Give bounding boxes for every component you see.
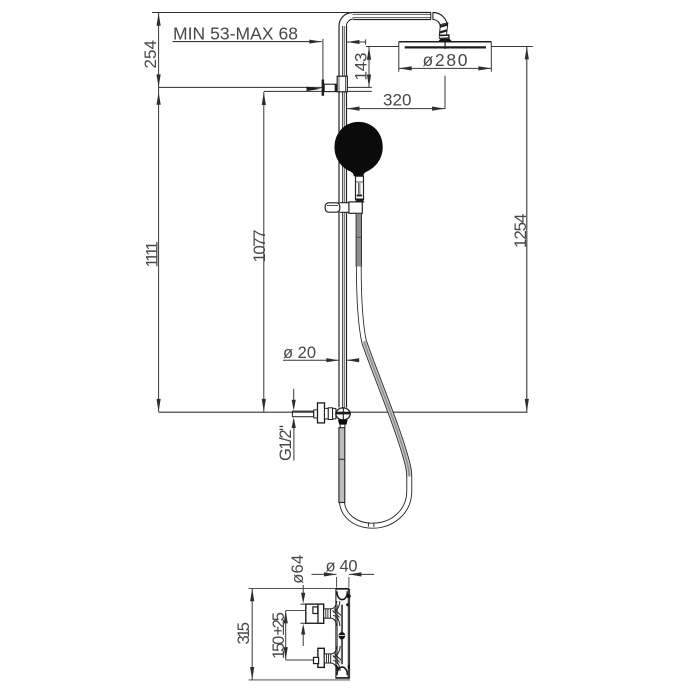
svg-text:G1/2": G1/2" <box>277 425 295 461</box>
svg-text:143: 143 <box>352 53 371 81</box>
svg-text:ø 40: ø 40 <box>326 557 358 575</box>
svg-text:1254: 1254 <box>511 214 530 249</box>
svg-text:320: 320 <box>383 91 412 110</box>
svg-text:ø64: ø64 <box>289 555 307 584</box>
svg-text:MIN 53-MAX 68: MIN 53-MAX 68 <box>173 23 298 43</box>
svg-text:254: 254 <box>141 40 160 69</box>
svg-text:315: 315 <box>235 622 253 645</box>
svg-text:150 ±25: 150 ±25 <box>270 612 288 659</box>
svg-text:1111: 1111 <box>143 241 162 268</box>
svg-text:ø 20: ø 20 <box>283 344 316 362</box>
svg-text:1077: 1077 <box>250 230 269 263</box>
